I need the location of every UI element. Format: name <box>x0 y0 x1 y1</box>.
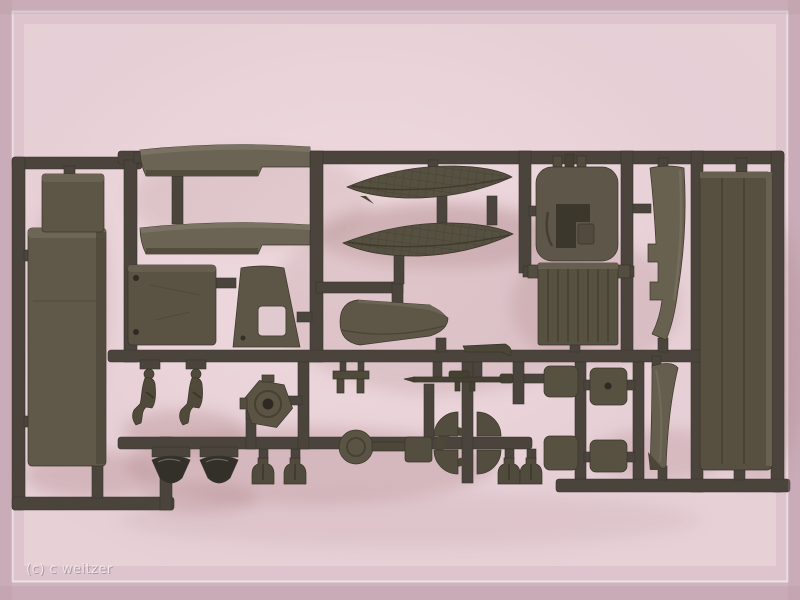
runner-vertical-4 <box>621 151 633 362</box>
watermark-text: (c) c weitzer <box>26 562 113 577</box>
sprue-photo: (c) c weitzer (c) c weitzer <box>0 0 800 600</box>
door-panel-part <box>128 265 216 345</box>
runner-wedge-elbow-v <box>392 282 403 304</box>
cab-window-cutout <box>258 306 286 336</box>
runner-left <box>12 157 25 510</box>
runner-wedge-elbow-h <box>316 282 403 293</box>
runner-vertical-6 <box>424 384 434 439</box>
photo-canvas: (c) c weitzer (c) c weitzer <box>0 0 800 600</box>
bulkhead-frame-part <box>536 154 618 261</box>
runner-vertical-8 <box>513 362 524 404</box>
equipment-box-part <box>42 174 104 232</box>
radiator-grille-part <box>528 263 630 345</box>
runner-bottom-right <box>556 479 790 492</box>
watermark: (c) c weitzer (c) c weitzer <box>26 562 114 578</box>
runner-hex-riser <box>298 362 309 449</box>
runner-vertical-2 <box>310 151 323 362</box>
cargo-bed-floor-part <box>28 228 106 466</box>
runner-right <box>771 151 784 492</box>
roof-panel-part <box>700 172 772 470</box>
runner-bottom-left <box>12 497 174 510</box>
